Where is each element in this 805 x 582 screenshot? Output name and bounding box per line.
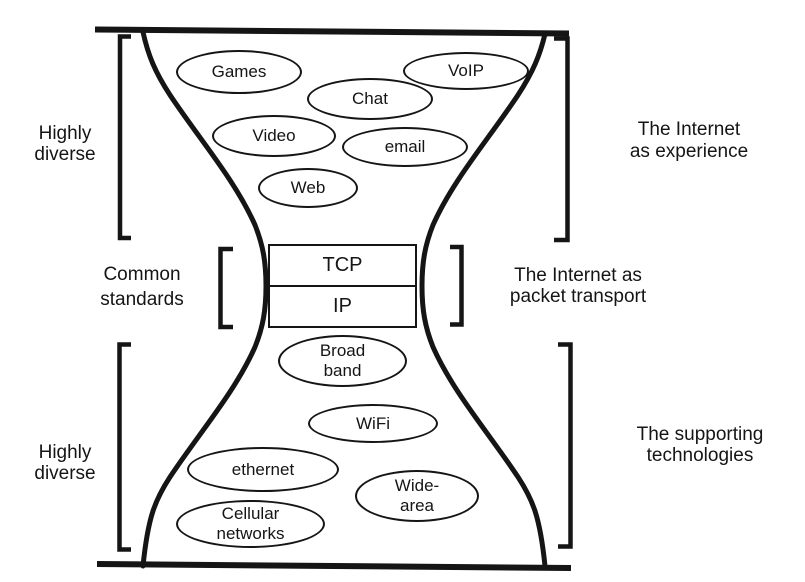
oval-broadband: Broad band	[278, 335, 407, 387]
label-line: The supporting	[620, 424, 780, 445]
oval-video: Video	[212, 115, 336, 157]
label-line: The Internet as	[498, 265, 658, 286]
bracket-top-right	[554, 39, 568, 241]
label-line: Highly	[0, 442, 130, 463]
oval-voip: VoIP	[403, 52, 529, 90]
label-internet-as-packet-transport: The Internet as packet transport	[498, 265, 658, 307]
oval-label: band	[324, 361, 362, 381]
oval-label: Broad	[320, 341, 365, 361]
label-line: as experience	[609, 141, 769, 163]
oval-games: Games	[176, 50, 302, 94]
oval-label: Wide-	[395, 476, 439, 496]
label-common-standards: Common standards	[62, 262, 222, 312]
oval-label: Games	[212, 62, 267, 82]
oval-label: networks	[216, 524, 284, 544]
tcp-layer: TCP	[270, 246, 415, 287]
label-line: Highly	[0, 123, 130, 144]
label-line: diverse	[0, 463, 130, 484]
protocol-stack: TCP IP	[268, 244, 417, 328]
oval-wifi: WiFi	[308, 404, 438, 443]
bracket-middle-left	[221, 249, 234, 327]
label-line: standards	[62, 287, 222, 312]
top-boundary-line	[95, 30, 569, 34]
label-line: diverse	[0, 144, 130, 165]
oval-label: Cellular	[222, 504, 280, 524]
bottom-boundary-line	[97, 564, 571, 568]
tcp-label: TCP	[323, 254, 363, 277]
label-line: packet transport	[498, 286, 658, 307]
label-line: The Internet	[609, 119, 769, 141]
label-internet-as-experience: The Internet as experience	[609, 119, 769, 163]
oval-web: Web	[258, 168, 358, 208]
oval-label: area	[400, 496, 434, 516]
oval-label: VoIP	[448, 61, 484, 81]
oval-cellular-networks: Cellular networks	[176, 500, 325, 548]
oval-label: Web	[291, 178, 326, 198]
internet-hourglass-diagram: Games VoIP Chat Video email Web TCP IP B…	[0, 0, 805, 582]
oval-label: ethernet	[232, 460, 294, 480]
ip-label: IP	[333, 295, 352, 318]
oval-ethernet: ethernet	[187, 447, 339, 492]
oval-wide-area: Wide- area	[355, 470, 479, 522]
oval-label: WiFi	[356, 414, 390, 434]
label-highly-diverse-bottom: Highly diverse	[0, 442, 130, 484]
oval-label: Chat	[352, 89, 388, 109]
oval-label: email	[385, 137, 426, 157]
oval-label: Video	[252, 126, 295, 146]
label-line: technologies	[620, 445, 780, 466]
label-supporting-technologies: The supporting technologies	[620, 424, 780, 466]
bracket-middle-right	[450, 247, 462, 325]
bracket-bottom-right	[558, 345, 571, 547]
ip-layer: IP	[270, 287, 415, 326]
oval-chat: Chat	[307, 78, 433, 120]
label-line: Common	[62, 262, 222, 287]
label-highly-diverse-top: Highly diverse	[0, 123, 130, 165]
oval-email: email	[342, 127, 468, 167]
